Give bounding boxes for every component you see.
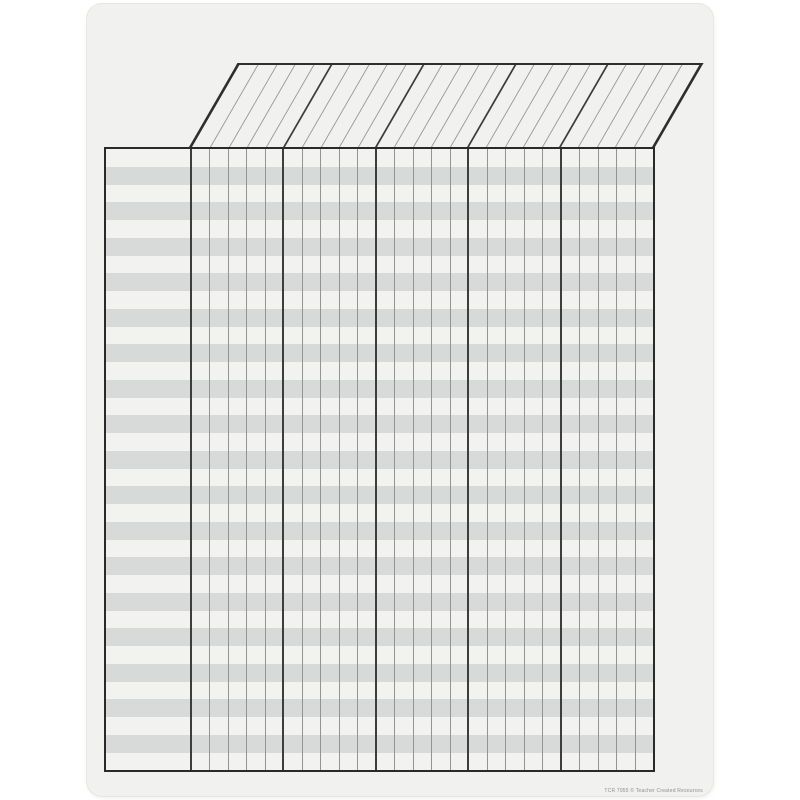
column-divider-line: [209, 149, 210, 770]
column-divider-line: [598, 149, 599, 770]
column-divider-line: [320, 149, 321, 770]
column-divider-line: [246, 149, 247, 770]
column-divider-line: [282, 149, 284, 770]
column-divider-line: [302, 149, 303, 770]
slanted-name-header: [189, 63, 703, 147]
screenshot-canvas: { "page": { "kind": "blank incentive cha…: [0, 0, 800, 800]
column-divider-line: [560, 149, 562, 770]
incentive-chart-page: TCR 7955 © Teacher Created Resources: [87, 4, 713, 796]
footer-credit: TCR 7955 © Teacher Created Resources: [604, 788, 703, 795]
column-dividers: [106, 149, 653, 770]
column-divider-line: [487, 149, 488, 770]
column-divider-line: [524, 149, 525, 770]
incentive-grid: [104, 147, 655, 772]
name-column-divider: [190, 149, 192, 770]
column-divider-line: [616, 149, 617, 770]
column-divider-line: [579, 149, 580, 770]
column-divider-line: [450, 149, 451, 770]
column-divider-line: [413, 149, 414, 770]
column-divider-line: [467, 149, 469, 770]
column-divider-line: [394, 149, 395, 770]
column-divider-line: [357, 149, 358, 770]
column-divider-line: [542, 149, 543, 770]
column-divider-line: [431, 149, 432, 770]
column-divider-line: [228, 149, 229, 770]
column-divider-line: [339, 149, 340, 770]
column-divider-line: [265, 149, 266, 770]
column-divider-line: [505, 149, 506, 770]
column-divider-line: [375, 149, 377, 770]
column-divider-line: [635, 149, 636, 770]
header-column-divider: [634, 65, 682, 147]
